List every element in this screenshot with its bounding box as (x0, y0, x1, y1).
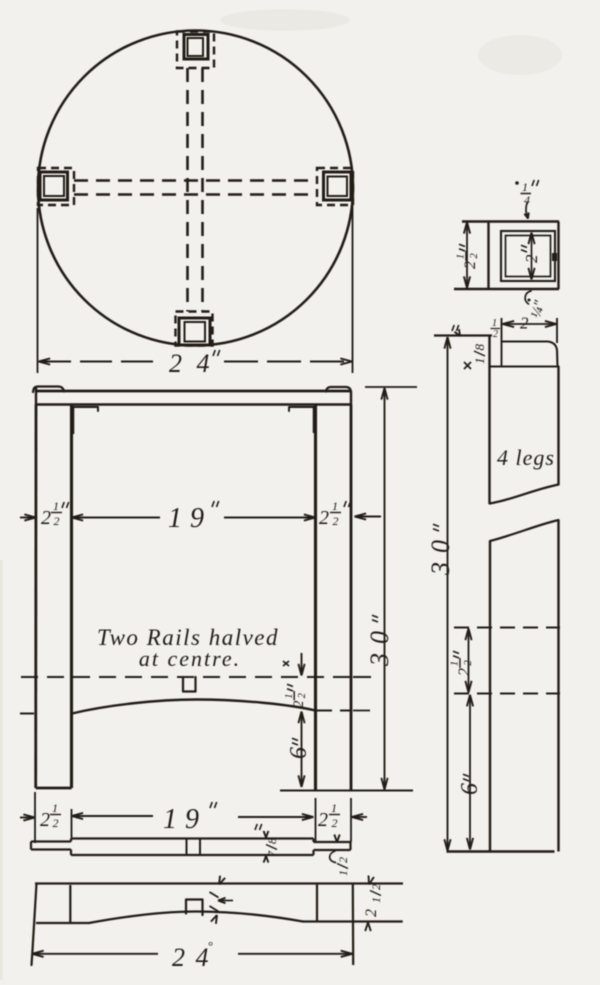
svg-text:2: 2 (336, 857, 350, 863)
svg-text:2: 2 (369, 884, 383, 890)
svg-text:1: 1 (331, 801, 337, 815)
svg-text:°: ° (208, 938, 213, 953)
svg-text:19: 19 (168, 503, 212, 534)
svg-text:8: 8 (265, 838, 279, 844)
svg-text:1: 1 (492, 318, 497, 329)
svg-text:2: 2 (468, 253, 480, 259)
svg-text:1: 1 (472, 358, 487, 365)
svg-text:2: 2 (297, 693, 308, 698)
svg-text:1: 1 (449, 661, 461, 666)
svg-text:2: 2 (54, 514, 60, 528)
svg-text:2: 2 (319, 507, 329, 529)
svg-text:1: 1 (284, 694, 295, 699)
svg-text:6: 6 (286, 747, 312, 759)
svg-text:2: 2 (522, 254, 541, 263)
svg-text:2: 2 (520, 314, 529, 333)
svg-text:1: 1 (336, 870, 350, 876)
svg-text:2: 2 (40, 809, 50, 831)
svg-text:1: 1 (522, 180, 528, 194)
svg-text:2: 2 (363, 909, 380, 917)
svg-text:2: 2 (291, 700, 307, 708)
svg-text:2: 2 (333, 514, 339, 528)
svg-text:1: 1 (369, 897, 383, 903)
svg-text:2 4: 2 4 (169, 349, 214, 378)
svg-text:4 legs: 4 legs (497, 445, 555, 470)
svg-text:2: 2 (41, 507, 51, 529)
svg-text:7: 7 (265, 850, 279, 857)
svg-text:19: 19 (163, 804, 207, 835)
svg-text:2: 2 (53, 816, 59, 830)
svg-text:8: 8 (472, 344, 487, 351)
svg-text:1: 1 (52, 801, 58, 815)
svg-text:1: 1 (455, 254, 467, 259)
svg-text:1: 1 (53, 499, 59, 513)
svg-text:2: 2 (462, 660, 474, 666)
svg-text:2: 2 (493, 329, 498, 340)
svg-text:2 4: 2 4 (172, 943, 211, 972)
svg-text:1: 1 (332, 499, 338, 513)
svg-text:2: 2 (456, 668, 473, 676)
svg-text:30: 30 (365, 622, 394, 667)
svg-text:6: 6 (457, 783, 483, 795)
svg-text:2: 2 (462, 261, 479, 269)
svg-text:2: 2 (332, 816, 338, 830)
svg-text:at centre.: at centre. (139, 646, 241, 671)
svg-text:2: 2 (318, 809, 328, 831)
svg-text:30: 30 (426, 531, 455, 576)
